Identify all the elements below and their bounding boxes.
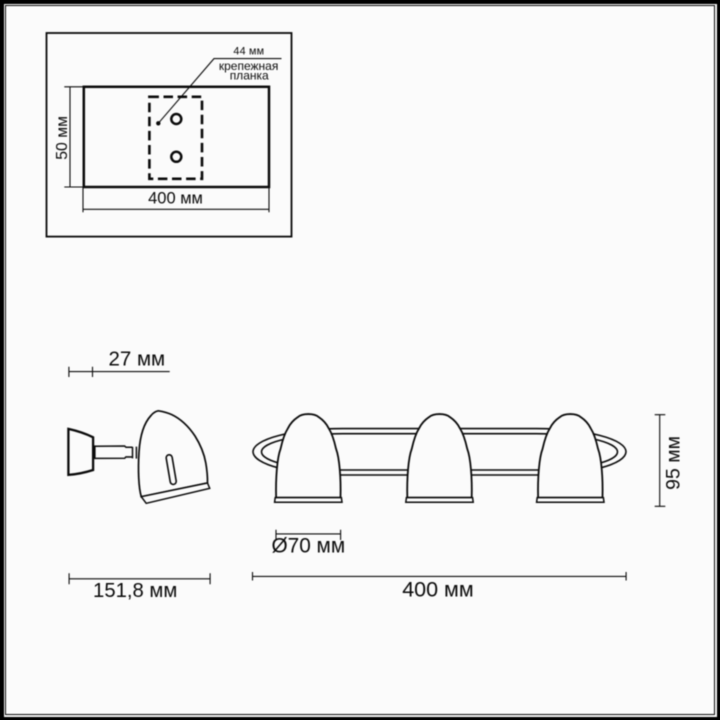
- svg-text:400 мм: 400 мм: [148, 189, 203, 207]
- svg-text:44 мм: 44 мм: [233, 46, 264, 58]
- svg-text:планка: планка: [230, 69, 269, 83]
- svg-text:50 мм: 50 мм: [54, 116, 71, 160]
- svg-text:27 мм: 27 мм: [108, 347, 165, 370]
- svg-text:400 мм: 400 мм: [402, 577, 473, 601]
- svg-text:95 мм: 95 мм: [663, 436, 685, 490]
- svg-text:151,8 мм: 151,8 мм: [93, 580, 177, 602]
- svg-text:Ø70 мм: Ø70 мм: [271, 535, 345, 558]
